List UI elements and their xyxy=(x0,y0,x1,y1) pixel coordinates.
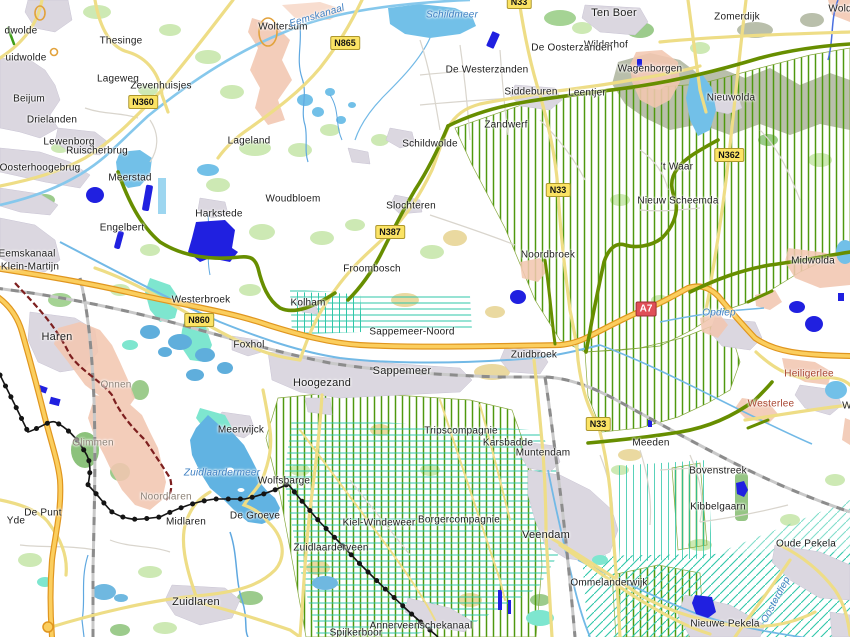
place-label-klein-martijn: Klein-Martijn xyxy=(1,262,59,273)
place-label-meerstad: Meerstad xyxy=(108,173,151,184)
water-label-schildmeer: Schildmeer xyxy=(426,10,478,21)
place-label-drielanden: Drielanden xyxy=(27,115,77,126)
place-label-schildwolde: Schildwolde xyxy=(402,139,458,150)
place-label-t-waar: 't Waar xyxy=(661,162,693,173)
place-label-beijum: Beijum xyxy=(13,94,45,105)
place-label-heiligerlee: Heiligerlee xyxy=(784,369,833,380)
place-label-meeden: Meeden xyxy=(632,438,669,449)
place-label-woudbloem: Woudbloem xyxy=(266,194,321,205)
water-label-opdiep: Opdiep xyxy=(702,308,735,319)
place-label-kolham: Kolham xyxy=(290,298,325,309)
place-label-w: W xyxy=(842,401,850,412)
highlight-circles xyxy=(35,6,277,56)
place-label-zomerdijk: Zomerdijk xyxy=(714,12,760,23)
road-shield-n362: N362 xyxy=(714,148,744,162)
place-label-ommelanderwijk: Ommelanderwijk xyxy=(570,578,647,589)
place-label-zevenhuisjes: Zevenhuisjes xyxy=(130,81,191,92)
place-label-borgercompagnie: Borgercompagnie xyxy=(418,515,500,526)
place-label-lageland: Lageland xyxy=(228,136,271,147)
place-label-westerbroek: Westerbroek xyxy=(172,295,231,306)
place-label-slochteren: Slochteren xyxy=(386,201,436,212)
place-label-de-groeve: De Groeve xyxy=(230,511,280,522)
road-shield-n360: N360 xyxy=(128,95,158,109)
place-label-glimmen: Glimmen xyxy=(72,438,113,449)
place-label-midlaren: Midlaren xyxy=(166,517,206,528)
road-shield-n387: N387 xyxy=(375,225,405,239)
place-label-midwolda: Midwolda xyxy=(791,256,835,267)
place-label-sappemeer-noord: Sappemeer-Noord xyxy=(369,327,454,338)
place-label-foxhol: Foxhol xyxy=(233,340,264,351)
place-label-eemskanaal: Eemskanaal xyxy=(0,249,56,260)
road-shield-n860: N860 xyxy=(184,313,214,327)
place-label-tripscompagnie: Tripscompagnie xyxy=(424,426,498,437)
place-label-wagenborgen: Wagenborgen xyxy=(618,64,683,75)
place-label-westerlee: Westerlee xyxy=(748,399,795,410)
place-label-onnen: Onnen xyxy=(100,380,131,391)
place-label-ten-boer: Ten Boer xyxy=(591,7,637,19)
water-label-zuidlaardermeer: Zuidlaardermeer xyxy=(184,468,260,479)
place-label-siddeburen: Siddeburen xyxy=(504,87,557,98)
place-label-uidwolde: uidwolde xyxy=(5,53,46,64)
place-label-nieuwolda: Nieuwolda xyxy=(707,93,756,104)
place-label-annerveenschekanaal: Annerveenschekanaal xyxy=(370,621,473,632)
place-label-veendam: Veendam xyxy=(522,529,570,541)
place-label-zuidbroek: Zuidbroek xyxy=(511,350,557,361)
road-shield-n865: N865 xyxy=(330,36,360,50)
place-label-wolfsbarge: Wolfsbarge xyxy=(258,476,310,487)
place-label-sappemeer: Sappemeer xyxy=(373,365,432,377)
motorway-shield-a7: A7 xyxy=(636,302,657,317)
place-label-de-punt: De Punt xyxy=(24,508,62,519)
place-label-nieuw-scheemda: Nieuw Scheemda xyxy=(637,196,718,207)
place-label-froombosch: Froombosch xyxy=(343,264,401,275)
place-label-zuidlaren: Zuidlaren xyxy=(172,596,220,608)
place-label-engelbert: Engelbert xyxy=(100,223,145,234)
place-label-muntendam: Muntendam xyxy=(516,448,571,459)
road-shield-n33: N33 xyxy=(546,183,571,197)
map-canvas[interactable]: dwoldeuidwoldeThesingeTen BoerWoltersumW… xyxy=(0,0,850,637)
place-label-haren: Haren xyxy=(42,331,73,343)
road-shield-n33: N33 xyxy=(507,0,532,9)
place-label-de-oosterzanden: De Oosterzanden xyxy=(531,43,612,54)
place-label-yde: Yde xyxy=(7,516,25,527)
place-label-hoogezand: Hoogezand xyxy=(293,377,351,389)
place-label-kiel-windeweer: Kiel-Windeweer xyxy=(343,518,416,529)
place-label-zuidlaarderveen: Zuidlaarderveen xyxy=(293,543,368,554)
place-label-meerwijck: Meerwijck xyxy=(218,425,264,436)
place-label-bovenstreek: Bovenstreek xyxy=(689,466,747,477)
place-label-harkstede: Harkstede xyxy=(195,209,242,220)
road-shield-n33: N33 xyxy=(586,417,611,431)
place-label-dwolde: dwolde xyxy=(5,26,38,37)
place-label-noordlaren: Noordlaren xyxy=(140,492,191,503)
place-label-oude-pekela: Oude Pekela xyxy=(776,539,836,550)
place-label-ruischerbrug: Ruischerbrug xyxy=(66,146,128,157)
place-label-thesinge: Thesinge xyxy=(100,36,143,47)
place-label-de-westerzanden: De Westerzanden xyxy=(446,65,529,76)
place-label-oosterhoogebrug: Oosterhoogebrug xyxy=(0,163,80,174)
place-label-nieuwe-pekela: Nieuwe Pekela xyxy=(690,619,759,630)
place-label-zandwerf: Zandwerf xyxy=(484,120,527,131)
place-label-kibbelgaarn: Kibbelgaarn xyxy=(690,502,746,513)
place-label-noordbroek: Noordbroek xyxy=(521,250,575,261)
place-label-leentjer: Leentjer xyxy=(568,88,606,99)
place-label-wolde: Wolde xyxy=(828,4,850,15)
